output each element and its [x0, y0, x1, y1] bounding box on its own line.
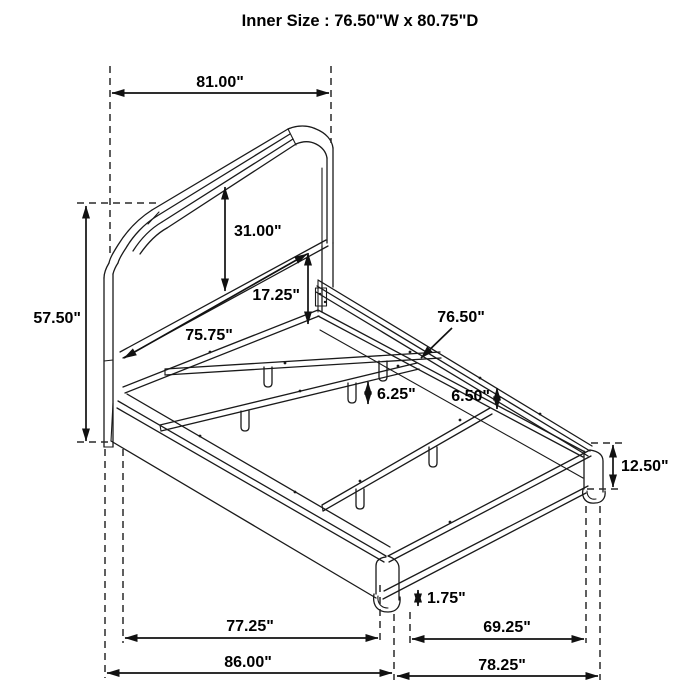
head-rail: [123, 310, 319, 393]
dim-label-1250: 12.50": [621, 458, 669, 475]
slat-1: [165, 352, 441, 375]
dim-label-1725: 17.25": [252, 287, 300, 304]
slat-3: [322, 408, 492, 511]
dim-label-5750: 57.50": [33, 310, 81, 327]
dimension-7825-overall-depth: 78.25": [397, 657, 598, 676]
corner-post-left: [374, 556, 401, 612]
dim-label-7650: 76.50": [437, 309, 485, 326]
bed-dimension-diagram-page: 81.00" 57.50" 31.00" 17.25" 75.75" 76.50…: [0, 0, 700, 700]
diagram-title: Inner Size : 76.50"W x 80.75"D: [242, 12, 479, 30]
dimension-1725-height: 17.25": [252, 253, 308, 324]
dim-label-6925: 69.25": [483, 619, 531, 636]
dimension-625-leg: 6.25": [368, 382, 416, 404]
dim-label-7825: 78.25": [478, 657, 526, 674]
dimension-6925-depth: 69.25": [412, 619, 584, 639]
dimension-81-width: 81.00": [112, 74, 329, 93]
dimension-7725-width: 77.25": [125, 618, 378, 638]
dimension-7575-headboard-inner: 75.75": [124, 254, 307, 358]
dim-label-3100: 31.00": [234, 223, 282, 240]
bun-foot-right: [583, 489, 606, 503]
dim-label-625: 6.25": [377, 386, 416, 403]
dim-label-81: 81.00": [196, 74, 244, 91]
screw-dots: [199, 351, 542, 524]
dimension-8600-overall-width: 86.00": [107, 654, 392, 673]
dim-label-7725: 77.25": [226, 618, 274, 635]
slat-support-legs: [241, 361, 437, 509]
dim-label-8600: 86.00": [224, 654, 272, 671]
dim-label-7575: 75.75": [185, 327, 233, 344]
dimension-1250-side-height: 12.50": [613, 445, 669, 487]
headboard: [104, 126, 333, 358]
bed-dimension-diagram: 81.00" 57.50" 31.00" 17.25" 75.75" 76.50…: [0, 0, 700, 700]
dimension-5750-height: 57.50": [33, 206, 86, 441]
dimension-7650-slat-leader: 76.50": [421, 309, 485, 358]
footboard: [383, 450, 591, 599]
dim-label-650: 6.50": [451, 388, 490, 405]
headboard-right-post: [316, 243, 334, 312]
dim-label-175: 1.75": [427, 590, 466, 607]
dimension-175-clearance: 1.75": [418, 590, 466, 607]
